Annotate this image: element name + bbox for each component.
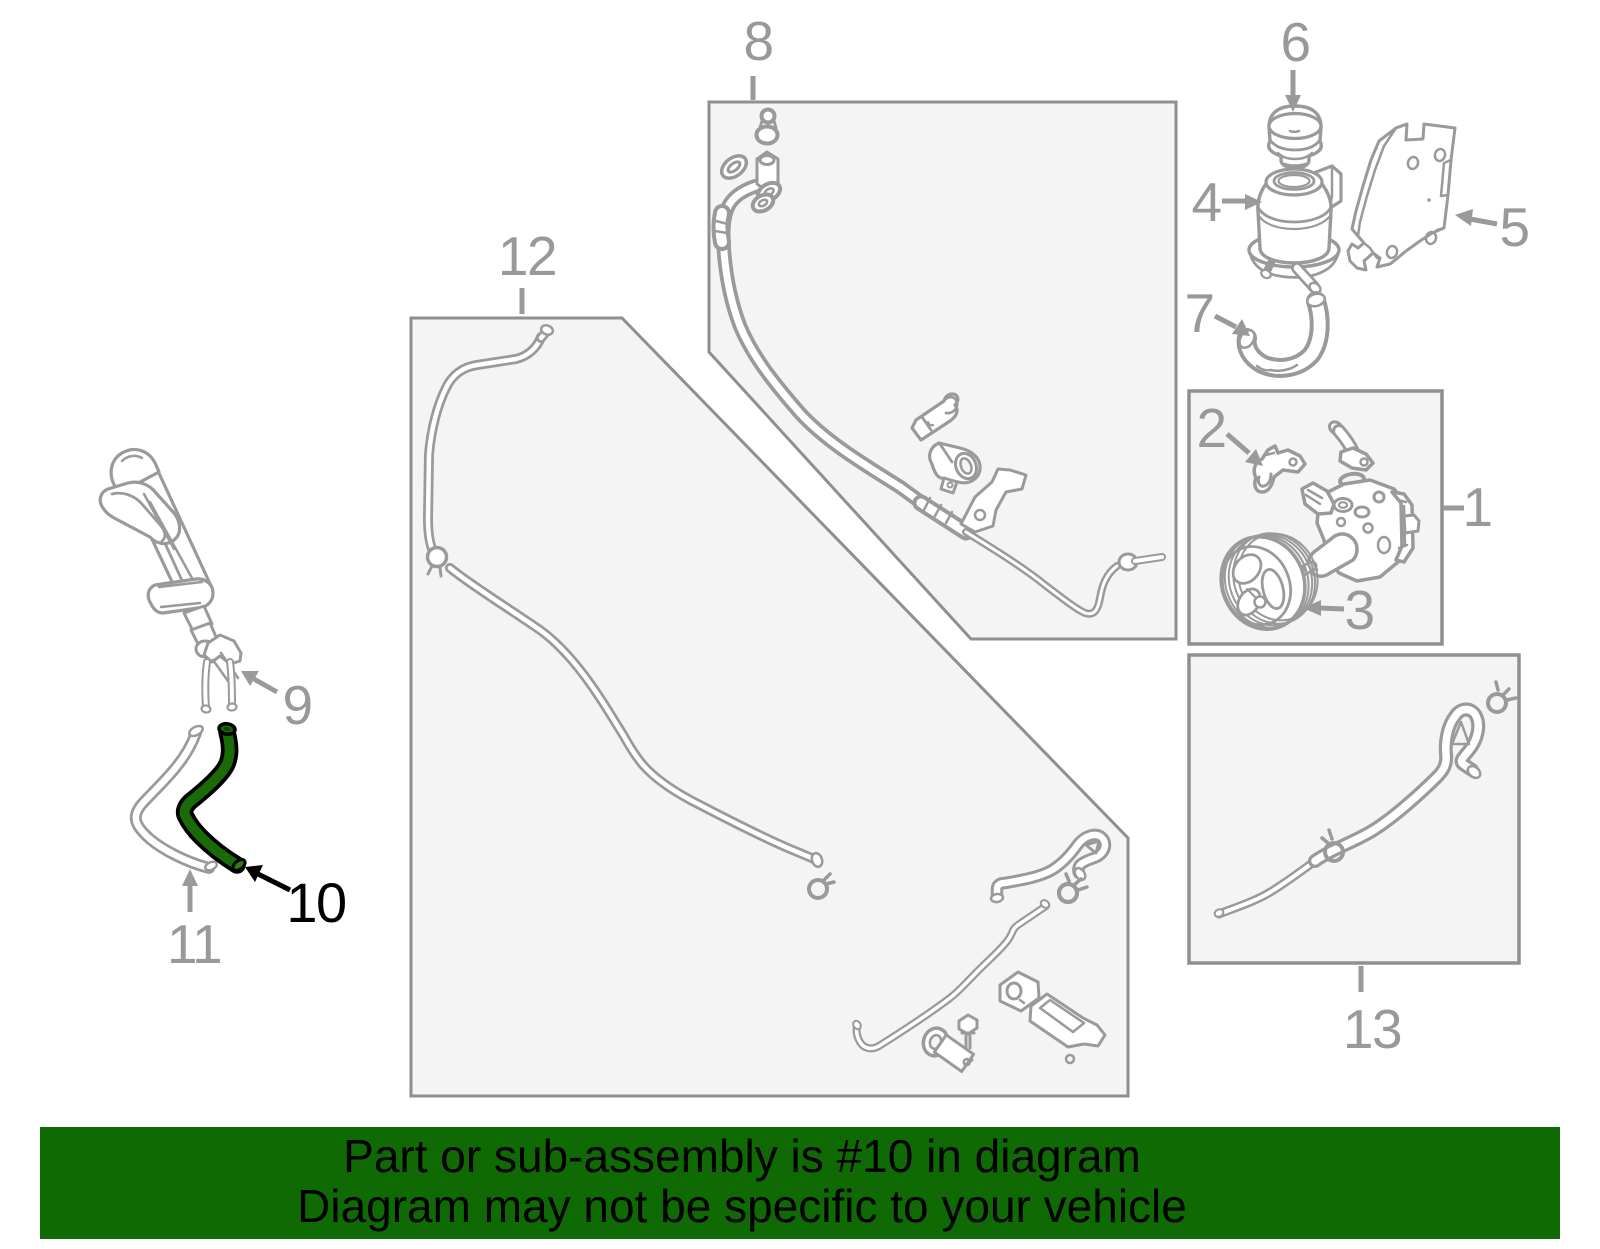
svg-text:8: 8 <box>743 10 772 72</box>
svg-text:5: 5 <box>1499 196 1528 258</box>
svg-text:13: 13 <box>1343 998 1401 1060</box>
svg-text:11: 11 <box>167 913 221 975</box>
svg-text:Part or sub-assembly is #10 in: Part or sub-assembly is #10 in diagram <box>343 1130 1141 1182</box>
svg-text:12: 12 <box>498 225 556 287</box>
svg-text:3: 3 <box>1344 579 1373 641</box>
svg-text:1: 1 <box>1462 476 1491 538</box>
svg-text:2: 2 <box>1196 397 1225 459</box>
svg-text:9: 9 <box>282 674 311 736</box>
svg-text:4: 4 <box>1191 171 1220 233</box>
svg-text:7: 7 <box>1184 282 1213 344</box>
svg-text:Diagram may not be specific to: Diagram may not be specific to your vehi… <box>297 1180 1187 1232</box>
svg-text:6: 6 <box>1280 11 1309 73</box>
svg-text:10: 10 <box>286 871 345 934</box>
